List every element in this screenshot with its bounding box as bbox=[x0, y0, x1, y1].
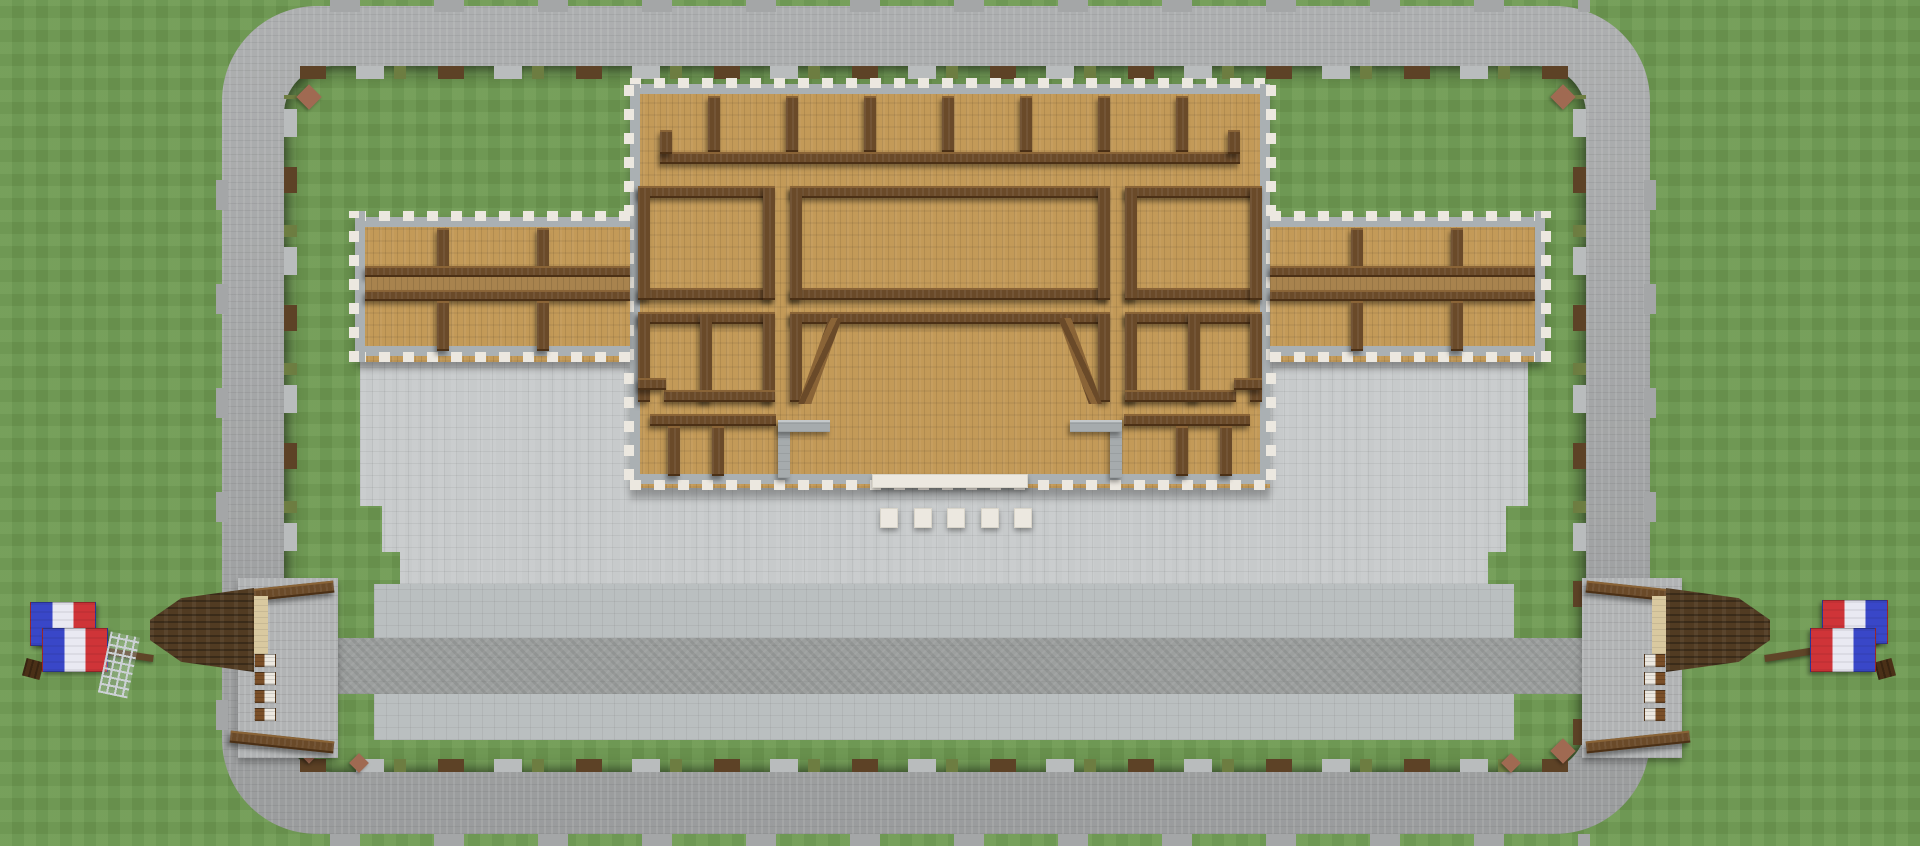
gatehouse-right-barrel-3 bbox=[1644, 690, 1666, 703]
wing-left-crenel-bottom bbox=[355, 346, 630, 362]
north-room-divider-4 bbox=[942, 96, 954, 152]
gatehouse-left-path bbox=[252, 596, 268, 654]
south-room-left-wall-e bbox=[763, 312, 775, 402]
wing-left-crenel-left bbox=[349, 211, 365, 362]
entrance-pillar-3 bbox=[947, 508, 965, 528]
mid-room-center-wall-e bbox=[1098, 186, 1110, 300]
north-corridor-wall bbox=[660, 152, 1240, 164]
mid-room-left-wall-s bbox=[638, 288, 775, 300]
porch-cap-right bbox=[1070, 420, 1122, 432]
gatehouse-left-barrel-4 bbox=[254, 708, 276, 721]
wing-right-crenel-top bbox=[1270, 211, 1545, 227]
wing-left-corridor-wall-south bbox=[365, 290, 630, 301]
gatehouse-right-path bbox=[1652, 596, 1668, 654]
north-corridor-hook-right bbox=[1228, 130, 1240, 154]
wing-right-room-divider-2 bbox=[1451, 228, 1463, 270]
north-room-divider-2 bbox=[786, 96, 798, 152]
wing-left-room-divider-1 bbox=[437, 228, 449, 270]
entry-row-left-wall bbox=[650, 414, 776, 426]
gatehouse-left-barrel-2 bbox=[254, 672, 276, 685]
entry-row-right-divider-2 bbox=[1220, 426, 1232, 476]
entrance-pillar-1 bbox=[880, 508, 898, 528]
esplanade-upper-band bbox=[374, 584, 1514, 638]
north-corridor-hook-left bbox=[660, 130, 672, 154]
minecraft-overhead-viewport[interactable] bbox=[0, 0, 1920, 846]
gatehouse-left-barrel-3 bbox=[254, 690, 276, 703]
wing-left-room-divider-4 bbox=[537, 301, 549, 351]
wall-inner-trim-bottom bbox=[300, 759, 1580, 772]
wing-right-crenel-bottom bbox=[1270, 346, 1545, 362]
french-flag-right-lower bbox=[1810, 628, 1876, 672]
wing-right-corridor-floor bbox=[1270, 277, 1535, 290]
south-room-right-door-jog bbox=[1234, 378, 1262, 390]
wing-left-crenel-top bbox=[355, 211, 630, 227]
south-room-right-wall-w bbox=[1125, 312, 1137, 402]
wing-right-room-divider-4 bbox=[1451, 301, 1463, 351]
wing-left-room-divider-2 bbox=[537, 228, 549, 270]
mid-room-center-wall-w bbox=[790, 186, 802, 300]
entrance-quartz-landing bbox=[872, 474, 1028, 488]
wing-right-corridor-wall-north bbox=[1270, 266, 1535, 277]
wing-left-room-divider-3 bbox=[437, 301, 449, 351]
north-room-divider-5 bbox=[1020, 96, 1032, 152]
gravel-road bbox=[306, 638, 1614, 694]
porch-cap-left bbox=[778, 420, 830, 432]
north-room-divider-6 bbox=[1098, 96, 1110, 152]
north-room-divider-7 bbox=[1176, 96, 1188, 152]
gatehouse-right-barrel-2 bbox=[1644, 672, 1666, 685]
gatehouse-right-barrel-4 bbox=[1644, 708, 1666, 721]
esplanade-lower-band bbox=[374, 694, 1514, 740]
entry-row-left-divider-1 bbox=[668, 426, 680, 476]
wing-right-room-divider-1 bbox=[1351, 228, 1363, 270]
mid-room-left-wall-e bbox=[763, 186, 775, 300]
south-room-right-wall-s bbox=[1125, 390, 1236, 402]
north-room-divider-3 bbox=[864, 96, 876, 152]
entry-row-left-divider-2 bbox=[712, 426, 724, 476]
gatehouse-left-barrel-1 bbox=[254, 654, 276, 667]
mid-room-center-wall-s bbox=[790, 288, 1110, 300]
french-flag-left-lower bbox=[42, 628, 108, 672]
wall-battlements-top bbox=[330, 0, 1590, 12]
entry-row-right-wall bbox=[1124, 414, 1250, 426]
wing-left-corridor-wall-north bbox=[365, 266, 630, 277]
mid-room-left-wall-w bbox=[638, 186, 650, 300]
north-room-divider-1 bbox=[708, 96, 720, 152]
mid-room-right-wall-e bbox=[1250, 186, 1262, 300]
wing-right-room-divider-3 bbox=[1351, 301, 1363, 351]
wall-battlements-bottom bbox=[330, 834, 1590, 846]
south-room-right-divider bbox=[1188, 312, 1200, 402]
entry-row-right-divider-1 bbox=[1176, 426, 1188, 476]
mid-room-right-wall-w bbox=[1125, 186, 1137, 300]
south-room-left-wall-s bbox=[664, 390, 775, 402]
palace-central-crenel-top bbox=[630, 78, 1270, 94]
entrance-pillar-2 bbox=[914, 508, 932, 528]
mid-room-left-wall-n bbox=[638, 186, 775, 198]
gatehouse-right-barrel-1 bbox=[1644, 654, 1666, 667]
stair-hall-wall-w bbox=[790, 312, 802, 402]
wing-right-crenel-right bbox=[1535, 211, 1551, 362]
entrance-pillar-4 bbox=[981, 508, 999, 528]
south-room-left-divider bbox=[700, 312, 712, 402]
mid-room-center-wall-n bbox=[790, 186, 1110, 198]
wing-left-corridor-floor bbox=[365, 277, 630, 290]
mid-room-right-wall-s bbox=[1125, 288, 1262, 300]
wing-right-corridor-wall-south bbox=[1270, 290, 1535, 301]
stair-hall-wall-e bbox=[1098, 312, 1110, 402]
entrance-pillar-5 bbox=[1014, 508, 1032, 528]
mid-room-right-wall-n bbox=[1125, 186, 1262, 198]
south-room-left-door-jog bbox=[638, 378, 666, 390]
